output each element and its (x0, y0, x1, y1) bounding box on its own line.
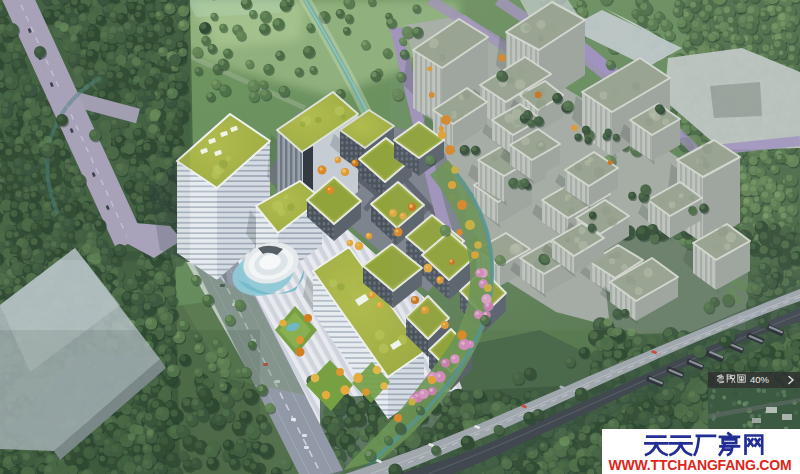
svg-text:40%: 40% (750, 374, 770, 385)
svg-text:WWW.TTCHANGFANG.COM: WWW.TTCHANGFANG.COM (609, 457, 792, 473)
